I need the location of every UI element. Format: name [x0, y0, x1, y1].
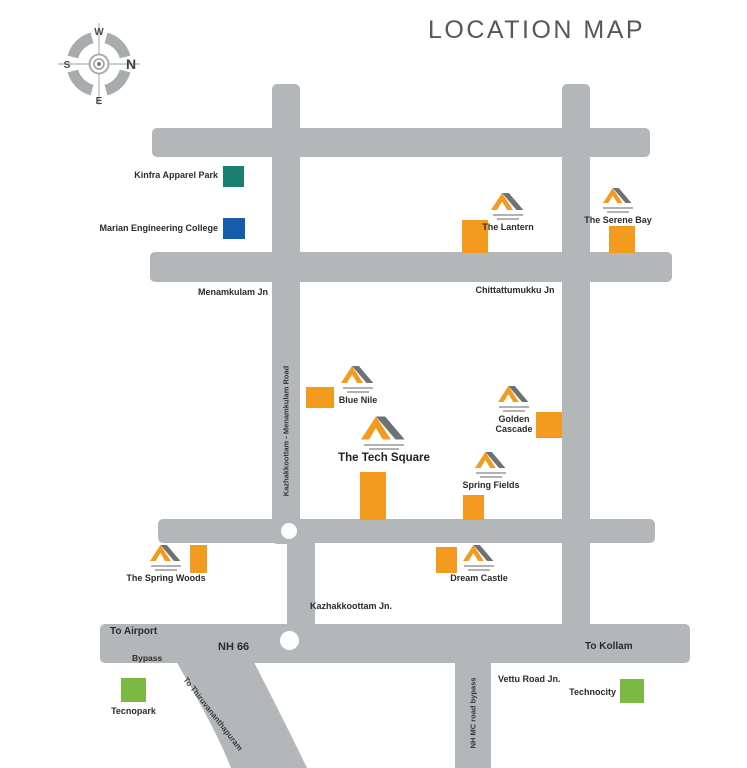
vettu-road-jn-label: Vettu Road Jn. — [498, 675, 588, 685]
logo-caption-line — [347, 391, 369, 393]
road-kazhakkoottam-connector — [287, 541, 315, 633]
project-the-lantern: The Lantern — [480, 191, 536, 232]
kinfra-apparel-park-label: Kinfra Apparel Park — [88, 171, 218, 181]
logo-caption-line — [607, 211, 629, 213]
logo-caption-line — [480, 476, 502, 478]
the-serene-bay-label: The Serene Bay — [584, 215, 652, 225]
location-map: LOCATION MAP W N S E Kinfra Apparel Park… — [0, 0, 747, 768]
project-dream-castle: Dream Castle — [444, 543, 514, 583]
roundabout-middle-junction — [281, 523, 297, 539]
builder-logo-icon — [463, 543, 495, 563]
project-the-tech-square: The Tech Square — [341, 414, 427, 465]
logo-caption-line — [497, 218, 519, 220]
bypass-label: Bypass — [132, 654, 162, 663]
marian-engineering-college-label: Marian Engineering College — [68, 224, 218, 234]
project-blue-nile: Blue Nile — [329, 364, 387, 405]
tecnopark-label: Tecnopark — [96, 707, 171, 717]
technocity-label: Technocity — [540, 688, 616, 698]
project-golden-cascade: Golden Cascade — [486, 384, 542, 435]
the-tech-square-marker — [360, 472, 386, 520]
builder-logo-icon — [475, 450, 507, 470]
kazhakkoottam-jn-label: Kazhakkoottam Jn. — [310, 602, 420, 612]
builder-logo-icon — [150, 543, 182, 563]
logo-caption-line — [151, 565, 181, 567]
roundabout-kazhakkoottam-nh66 — [280, 631, 299, 650]
chittattumukku-jn-label: Chittattumukku Jn — [466, 286, 564, 296]
logo-caption-line — [476, 472, 506, 474]
logo-caption-line — [364, 444, 404, 446]
spring-fields-label: Spring Fields — [462, 480, 519, 490]
builder-logo-icon — [341, 364, 375, 385]
builder-logo-icon — [491, 191, 525, 212]
to-airport-label: To Airport — [110, 626, 157, 637]
spring-fields-marker — [463, 495, 484, 520]
dream-castle-label: Dream Castle — [450, 573, 508, 583]
kinfra-apparel-park-swatch — [223, 166, 244, 187]
project-spring-fields: Spring Fields — [462, 450, 520, 490]
logo-caption-line — [343, 387, 373, 389]
tecnopark-swatch — [121, 678, 146, 702]
builder-logo-icon — [361, 414, 407, 442]
logo-caption-line — [493, 214, 523, 216]
logo-caption-line — [464, 565, 494, 567]
builder-logo-icon — [498, 384, 530, 404]
project-the-spring-woods: The Spring Woods — [128, 543, 204, 583]
the-serene-bay-marker — [609, 226, 635, 253]
logo-caption-line — [499, 406, 529, 408]
golden-cascade-label: Golden Cascade — [489, 414, 539, 435]
technocity-swatch — [620, 679, 644, 703]
menamkulam-jn-label: Menamkulam Jn — [160, 288, 268, 298]
logo-caption-line — [155, 569, 177, 571]
to-kollam-label: To Kollam — [585, 641, 633, 652]
builder-logo-icon — [603, 186, 633, 205]
road-menamkulam-chittattumukku — [150, 252, 672, 282]
the-spring-woods-label: The Spring Woods — [126, 573, 205, 583]
nh-mc-road-bypass-label: NH MC road bypass — [469, 678, 478, 749]
the-tech-square-label: The Tech Square — [338, 452, 430, 465]
nh66-label: NH 66 — [218, 641, 249, 653]
logo-caption-line — [503, 410, 525, 412]
marian-engineering-college-swatch — [223, 218, 245, 239]
the-lantern-label: The Lantern — [482, 222, 534, 232]
logo-caption-line — [468, 569, 490, 571]
blue-nile-label: Blue Nile — [339, 395, 378, 405]
logo-caption-line — [369, 448, 399, 450]
kazhakkoottam-menamkulam-road-label: Kazhakkoottam - Menamkulam Road — [282, 366, 291, 496]
road-right-vertical — [562, 84, 590, 634]
logo-caption-line — [603, 207, 633, 209]
project-the-serene-bay: The Serene Bay — [588, 186, 648, 225]
